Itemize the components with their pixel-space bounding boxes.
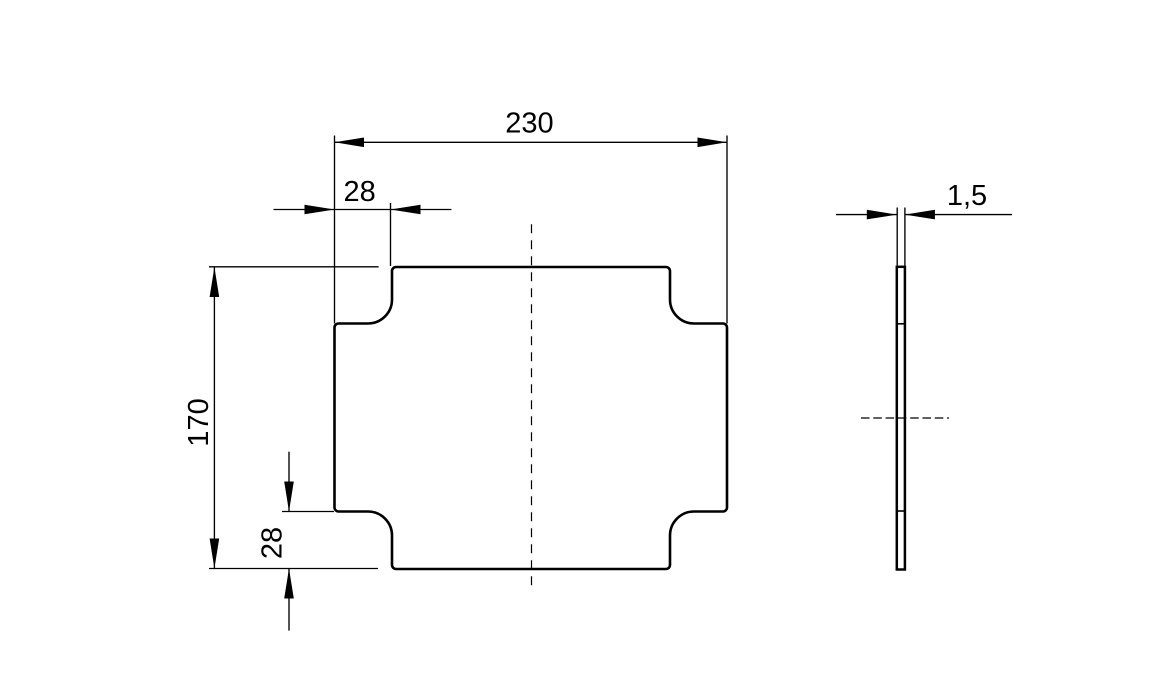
svg-text:28: 28 xyxy=(257,527,289,559)
svg-text:28: 28 xyxy=(343,176,375,208)
svg-text:230: 230 xyxy=(505,108,553,140)
svg-text:170: 170 xyxy=(183,398,215,446)
svg-text:1,5: 1,5 xyxy=(947,180,987,212)
